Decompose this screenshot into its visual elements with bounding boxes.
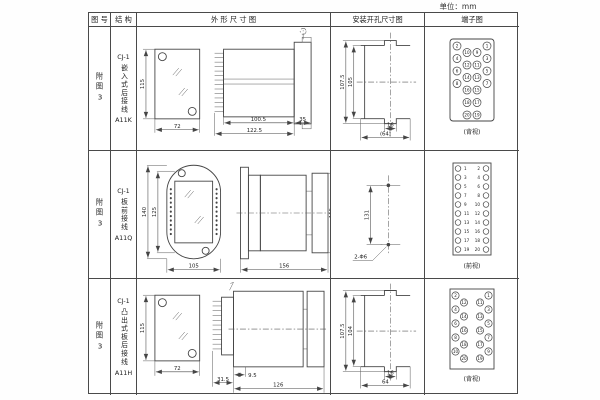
terminal-number: 16 — [461, 328, 467, 333]
unit-label: 单位：mm — [408, 1, 508, 12]
dim-total-depth: 122.5 — [247, 127, 262, 133]
dim-overall-width: (64) — [380, 131, 391, 137]
terminal-number: 4 — [454, 307, 457, 312]
mount-hole — [202, 247, 209, 254]
terminal-number: 1 — [487, 293, 490, 298]
mount-type-label: 板前接线 — [119, 198, 129, 231]
terminal-pin — [455, 201, 461, 207]
fig-no-row1: 附图3 — [89, 27, 111, 151]
dim-slot-width: 16 — [387, 371, 394, 377]
dim-overall-width: 64 — [382, 380, 389, 386]
terminal-number: 1 — [486, 43, 489, 48]
terminal-number: 7 — [487, 335, 490, 340]
terminal-number: 8 — [454, 335, 457, 340]
terminal-number: 3 — [464, 175, 467, 180]
terminal-pin — [455, 246, 461, 252]
terminal-number: 20 — [464, 112, 470, 117]
spec-table: 图 号 结 构 外 形 尺 寸 图 安装开孔尺寸图 端子图 附图3 CJ-1 嵌… — [88, 12, 518, 394]
terminal-pin — [483, 201, 489, 207]
dim-width: 72 — [174, 123, 181, 129]
terminal-number: 20 — [475, 247, 481, 252]
mount-hole — [178, 169, 185, 176]
terminal-number: 18 — [461, 342, 467, 347]
dim-outer-height: 107.5 — [340, 74, 346, 89]
dim-height: 115 — [140, 323, 146, 333]
terminal-number: 17 — [474, 100, 480, 105]
terminal-number: 10 — [475, 202, 481, 207]
terminal-pin — [483, 210, 489, 216]
terminal-number: 12 — [464, 62, 470, 67]
terminal-number: 14 — [464, 75, 470, 80]
terminal-number: 19 — [464, 247, 470, 252]
series-label: CJ-1 — [117, 53, 130, 61]
dim-depth: 156 — [279, 263, 290, 269]
terminal-number: 16 — [475, 229, 481, 234]
terminal-number: 11 — [477, 300, 483, 305]
model-label: A11H — [115, 369, 132, 377]
terminal-number: 4 — [456, 56, 459, 61]
terminal-number: 13 — [464, 220, 470, 225]
terminal-number: 2 — [477, 166, 480, 171]
terminal-number: 15 — [474, 87, 480, 92]
header-structure: 结 构 — [111, 13, 137, 27]
dim-width: 72 — [174, 366, 181, 372]
relay-front-outline — [175, 181, 213, 243]
terminal-number: 17 — [464, 238, 470, 243]
header-terminal: 端子图 — [425, 13, 519, 27]
terminal-pin — [455, 237, 461, 243]
terminal-drawing-row3: (背视) 2468101214161820111315171913579 — [425, 279, 519, 395]
dim-height: 115 — [140, 78, 146, 88]
dim-inner-height: 105 — [348, 76, 354, 86]
dim-outer-height: 107.5 — [340, 323, 346, 338]
dim-slot-width: 16 — [387, 122, 394, 128]
dim-hole-spacing: 131 — [365, 209, 371, 219]
terminal-number: 3 — [486, 56, 489, 61]
model-label: A11Q — [115, 234, 133, 242]
structure-row3: CJ-1 凸出式板后接线 A11H — [111, 279, 137, 395]
terminal-pin — [455, 210, 461, 216]
terminal-number: 2 — [456, 43, 459, 48]
mount-hole — [188, 107, 196, 115]
terminal-number: 5 — [486, 68, 489, 73]
terminal-number: 4 — [477, 175, 480, 180]
terminal-number: 14 — [461, 314, 467, 319]
terminal-pin — [483, 237, 489, 243]
fig-no-text: 附图3 — [95, 321, 105, 353]
dim-stub-depth: 9.5 — [248, 373, 257, 379]
dim-terminal-depth: 31.5 — [217, 377, 229, 383]
outline-drawing-row2: 140 125 105 156 115 — [137, 151, 331, 279]
terminal-number: 8 — [477, 193, 480, 198]
outline-svg-row1: 115 72 100.5 35 122.5 — [137, 27, 330, 151]
terminal-number: 19 — [477, 356, 483, 361]
terminal-number: 20 — [461, 356, 467, 361]
terminal-number: 3 — [487, 307, 490, 312]
terminal-pin — [483, 246, 489, 252]
install-drawing-row1: 107.5 105 16 (64) — [331, 27, 425, 151]
terminal-number: 7 — [486, 81, 489, 86]
dim-inner-height: 104 — [348, 325, 354, 336]
terminal-number: 15 — [477, 328, 483, 333]
flange-side — [294, 42, 311, 124]
dim-inner-height: 125 — [152, 206, 158, 216]
view-caption: (前视) — [464, 262, 481, 270]
terminal-block-outline — [450, 289, 494, 369]
mount-type-label: 凸出式板后接线 — [119, 308, 129, 366]
terminal-pin — [455, 219, 461, 225]
terminal-number: 6 — [454, 321, 457, 326]
dim-flange-depth: 35 — [299, 116, 306, 122]
terminal-svg-row2: (前视) 1357911131517192468101214161820 — [425, 151, 519, 279]
relay-front-outline — [155, 49, 200, 119]
terminal-number: 17 — [477, 342, 483, 347]
relay-body-side — [224, 49, 295, 117]
outline-svg-row2: 140 125 105 156 115 — [137, 151, 330, 279]
terminal-pin — [483, 174, 489, 180]
terminal-number: 2 — [454, 293, 457, 298]
terminal-number: 5 — [464, 184, 467, 189]
fig-no-row3: 附图3 — [89, 279, 111, 395]
terminal-number: 10 — [464, 50, 470, 55]
terminal-number: 9 — [487, 349, 490, 354]
dim-body-depth: 126 — [273, 383, 284, 389]
series-label: CJ-1 — [117, 187, 130, 195]
header-install: 安装开孔尺寸图 — [331, 13, 425, 27]
hole-spec-label: 2-Φ6 — [354, 254, 368, 260]
terminal-number: 6 — [456, 68, 459, 73]
fig-no-text: 附图3 — [95, 198, 105, 230]
terminal-comb — [215, 53, 224, 111]
terminal-number: 11 — [474, 62, 480, 67]
terminal-number: 18 — [464, 100, 470, 105]
terminal-number: 11 — [464, 211, 470, 216]
view-caption: (背视) — [464, 375, 481, 383]
terminal-pin — [455, 174, 461, 180]
terminal-number: 13 — [477, 314, 483, 319]
install-svg-row1: 107.5 105 16 (64) — [331, 27, 424, 151]
terminal-number: 15 — [464, 229, 470, 234]
terminal-pin — [455, 228, 461, 234]
fig-no-row2: 附图3 — [89, 151, 111, 279]
terminal-number: 7 — [464, 193, 467, 198]
terminal-number: 9 — [476, 50, 479, 55]
outline-drawing-row3: 115 72 9.5 31.5 126 — [137, 279, 331, 395]
terminal-number: 13 — [474, 75, 480, 80]
terminal-number: 16 — [464, 87, 470, 92]
terminal-pin — [483, 219, 489, 225]
terminal-pin — [483, 192, 489, 198]
terminal-number: 1 — [464, 166, 467, 171]
install-svg-row3: 107.5 104 16 64 — [331, 279, 424, 395]
terminal-comb — [213, 301, 222, 349]
series-label: CJ-1 — [117, 297, 130, 305]
mount-type-label: 嵌入式后接线 — [119, 64, 129, 114]
model-label: A11K — [115, 116, 132, 124]
terminal-pin — [455, 192, 461, 198]
glass-hatch — [173, 68, 188, 96]
relay-front-outline — [155, 295, 200, 361]
dim-body-depth: 100.5 — [251, 116, 266, 122]
fig-no-text: 附图3 — [95, 72, 105, 104]
dim-width: 105 — [189, 263, 199, 269]
install-svg-row2: 131 2-Φ6 — [331, 151, 424, 279]
header-fig-no: 图 号 — [89, 13, 111, 27]
terminal-number: 14 — [475, 220, 481, 225]
mount-hole — [158, 299, 166, 307]
mount-hole-mark — [387, 242, 391, 246]
mount-hole — [158, 52, 166, 60]
terminal-number: 12 — [461, 300, 467, 305]
terminal-svg-row1: (背视) 2468101214161820911131517191357 — [425, 27, 519, 151]
terminal-drawing-row2: (前视) 1357911131517192468101214161820 — [425, 151, 519, 279]
install-drawing-row3: 107.5 104 16 64 — [331, 279, 425, 395]
structure-row1: CJ-1 嵌入式后接线 A11K — [111, 27, 137, 151]
mount-hole-mark — [387, 183, 391, 187]
outline-svg-row3: 115 72 9.5 31.5 126 — [137, 279, 330, 395]
view-caption: (背视) — [464, 128, 481, 136]
terminal-number: 6 — [477, 184, 480, 189]
terminal-number: 10 — [453, 349, 459, 354]
terminal-base — [222, 297, 234, 355]
mount-hole — [188, 349, 196, 357]
outline-drawing-row1: 115 72 100.5 35 122.5 — [137, 27, 331, 151]
terminal-number: 5 — [487, 321, 490, 326]
terminal-drawing-row1: (背视) 2468101214161820911131517191357 — [425, 27, 519, 151]
dim-outer-height: 140 — [142, 206, 148, 217]
dim-side-height: 115 — [329, 207, 330, 217]
glass-hatch — [185, 190, 204, 224]
install-drawing-row2: 131 2-Φ6 — [331, 151, 425, 279]
terminal-svg-row3: (背视) 2468101214161820111315171913579 — [425, 279, 519, 395]
terminal-number: 18 — [475, 238, 481, 243]
terminal-number: 12 — [475, 211, 481, 216]
terminal-number: 8 — [456, 81, 459, 86]
terminal-pin — [483, 165, 489, 171]
structure-row2: CJ-1 板前接线 A11Q — [111, 151, 137, 279]
terminal-pin — [483, 183, 489, 189]
terminal-pin — [455, 183, 461, 189]
terminal-pin — [483, 228, 489, 234]
terminal-number: 19 — [474, 112, 480, 117]
terminal-pin — [455, 165, 461, 171]
terminal-number: 9 — [464, 202, 467, 207]
glass-hatch — [173, 312, 188, 340]
header-outline: 外 形 尺 寸 图 — [137, 13, 331, 27]
